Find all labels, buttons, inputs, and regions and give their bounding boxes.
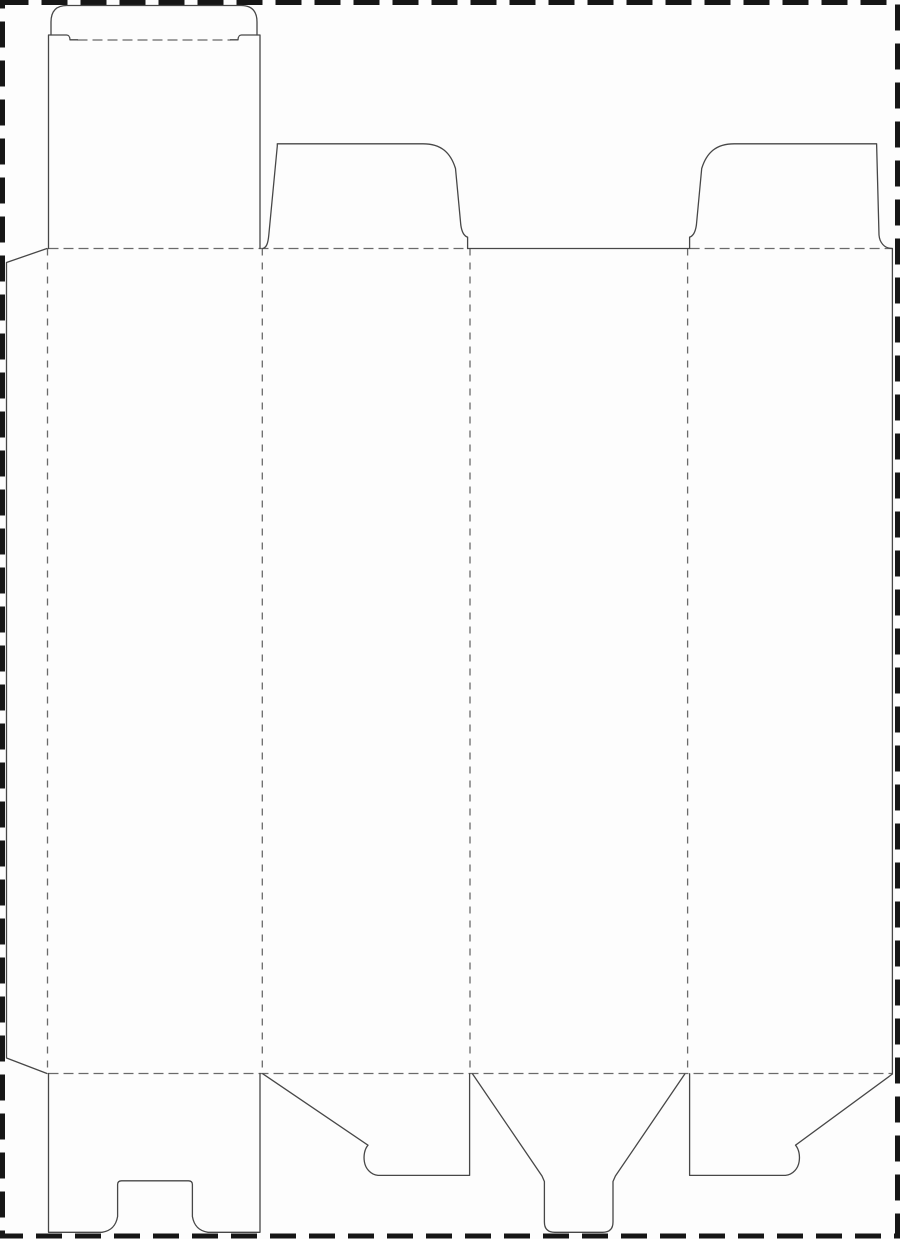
page-background [0, 0, 900, 1239]
dieline-template-page [0, 0, 900, 1239]
box-dieline-drawing [0, 0, 900, 1239]
